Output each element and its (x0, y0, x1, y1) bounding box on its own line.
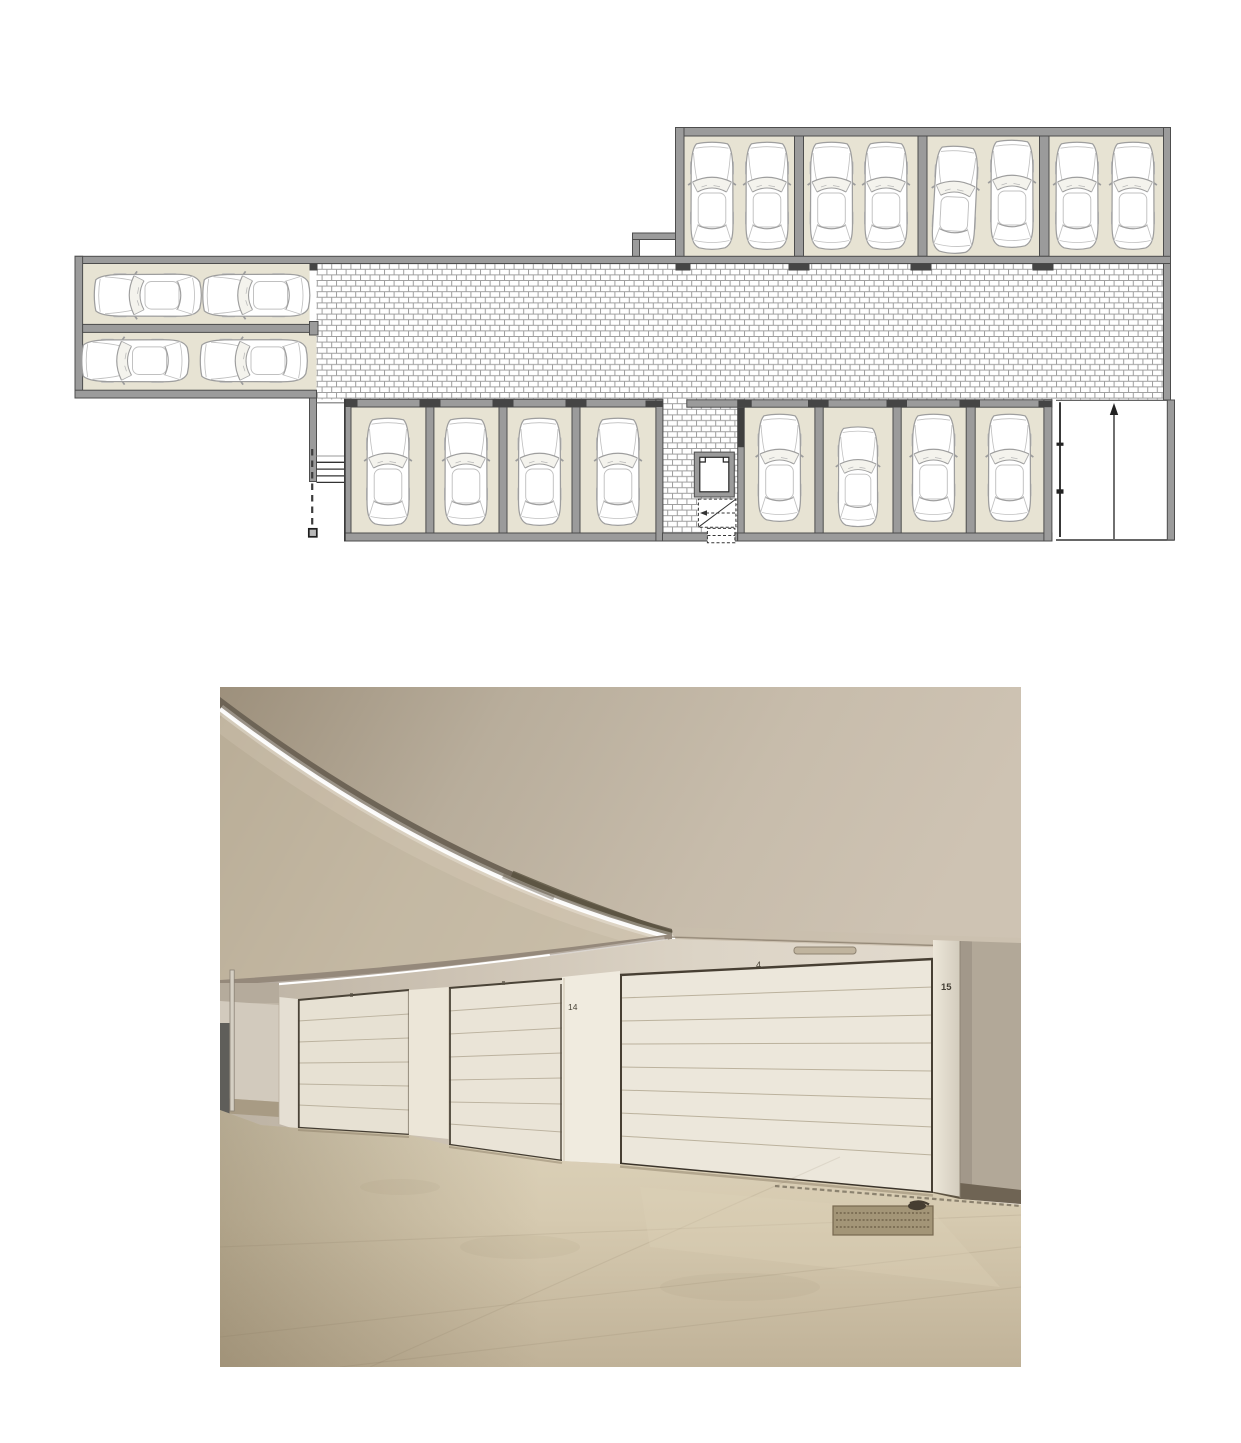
svg-text:15: 15 (941, 982, 952, 993)
svg-text:4: 4 (756, 960, 761, 970)
svg-text:14: 14 (568, 1002, 578, 1012)
